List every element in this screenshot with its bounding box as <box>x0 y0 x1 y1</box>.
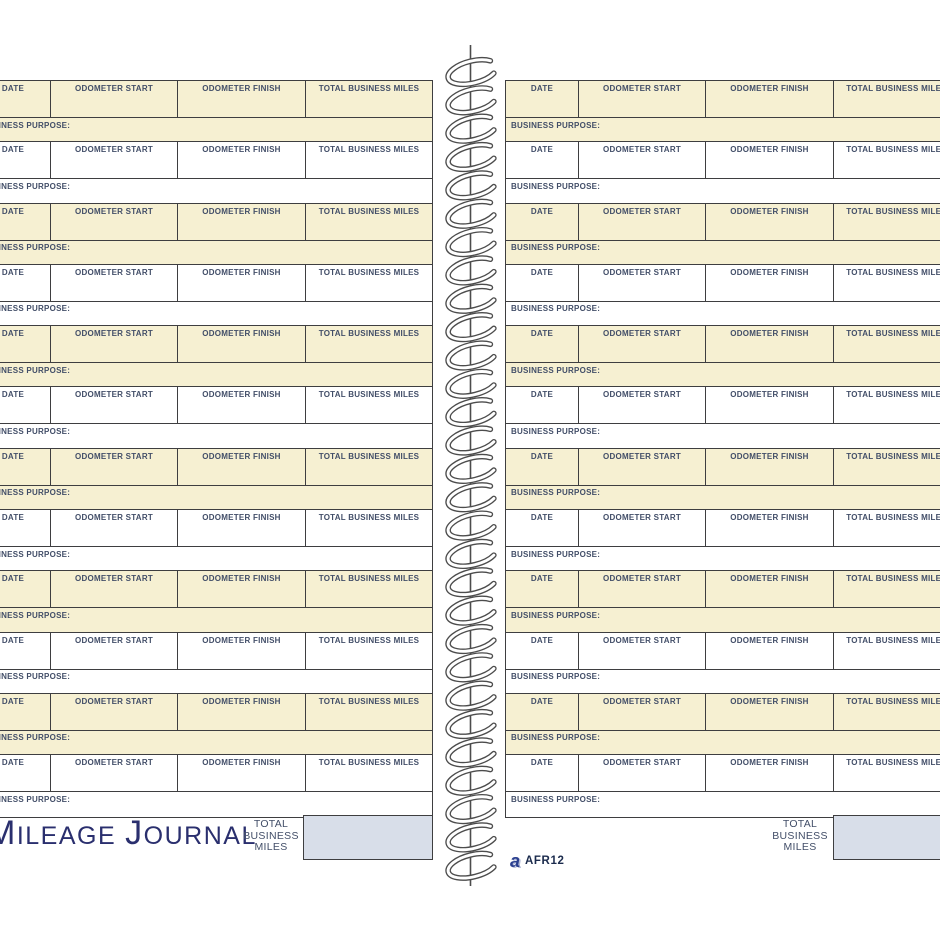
column-header-label: ODOMETER FINISH <box>730 145 808 154</box>
log-entry: DATEODOMETER STARTODOMETER FINISHTOTAL B… <box>0 326 432 387</box>
column-header-label: TOTAL BUSINESS MILES <box>319 513 420 522</box>
business-purpose-label: BUSINESS PURPOSE: <box>511 611 600 620</box>
column-header-label: ODOMETER START <box>75 390 153 399</box>
column-cell-total-business-miles: TOTAL BUSINESS MILES <box>306 571 432 607</box>
column-cell-date: DATE <box>0 387 51 423</box>
business-purpose-row: BUSINESS PURPOSE: <box>506 424 940 448</box>
column-header-label: ODOMETER START <box>75 513 153 522</box>
column-cell-odometer-finish: ODOMETER FINISH <box>178 81 306 117</box>
column-header-label: DATE <box>531 207 553 216</box>
column-cell-total-business-miles: TOTAL BUSINESS MILES <box>834 204 940 240</box>
column-cell-date: DATE <box>0 694 51 730</box>
column-header-label: TOTAL BUSINESS MILES <box>846 145 940 154</box>
column-cell-odometer-start: ODOMETER START <box>579 142 706 178</box>
column-cell-odometer-start: ODOMETER START <box>51 694 178 730</box>
business-purpose-row: BUSINESS PURPOSE: <box>0 792 432 816</box>
column-header-label: ODOMETER FINISH <box>202 268 280 277</box>
business-purpose-label: BUSINESS PURPOSE: <box>511 304 600 313</box>
column-header-label: ODOMETER FINISH <box>730 390 808 399</box>
column-cell-odometer-finish: ODOMETER FINISH <box>178 510 306 546</box>
business-purpose-row: BUSINESS PURPOSE: <box>0 547 432 571</box>
log-entry-header-row: DATEODOMETER STARTODOMETER FINISHTOTAL B… <box>506 633 940 670</box>
column-header-label: ODOMETER START <box>75 574 153 583</box>
column-cell-odometer-start: ODOMETER START <box>51 387 178 423</box>
log-entry: DATEODOMETER STARTODOMETER FINISHTOTAL B… <box>0 204 432 265</box>
column-header-label: ODOMETER FINISH <box>202 329 280 338</box>
business-purpose-row: BUSINESS PURPOSE: <box>0 118 432 142</box>
column-cell-odometer-start: ODOMETER START <box>51 81 178 117</box>
trip-log-table-right: DATEODOMETER STARTODOMETER FINISHTOTAL B… <box>505 80 940 818</box>
column-cell-odometer-start: ODOMETER START <box>51 265 178 301</box>
journal-title: MILEAGEJOURNAL <box>0 816 257 853</box>
column-header-label: DATE <box>2 390 24 399</box>
column-header-label: ODOMETER START <box>603 513 681 522</box>
column-header-label: TOTAL BUSINESS MILES <box>846 207 940 216</box>
column-cell-total-business-miles: TOTAL BUSINESS MILES <box>306 510 432 546</box>
column-cell-date: DATE <box>0 510 51 546</box>
column-header-label: ODOMETER START <box>603 329 681 338</box>
column-cell-odometer-start: ODOMETER START <box>51 449 178 485</box>
column-cell-odometer-finish: ODOMETER FINISH <box>178 571 306 607</box>
column-header-label: DATE <box>2 513 24 522</box>
column-cell-odometer-finish: ODOMETER FINISH <box>706 81 834 117</box>
column-cell-total-business-miles: TOTAL BUSINESS MILES <box>306 265 432 301</box>
column-header-label: ODOMETER FINISH <box>202 207 280 216</box>
column-cell-date: DATE <box>506 265 579 301</box>
business-purpose-row: BUSINESS PURPOSE: <box>506 179 940 203</box>
log-entry-header-row: DATEODOMETER STARTODOMETER FINISHTOTAL B… <box>506 326 940 363</box>
total-miles-box-left <box>303 815 433 860</box>
log-entry-header-row: DATEODOMETER STARTODOMETER FINISHTOTAL B… <box>0 142 432 179</box>
total-business-miles-label-right: TOTAL BUSINESS MILES <box>769 819 831 854</box>
column-cell-date: DATE <box>506 449 579 485</box>
column-header-label: TOTAL BUSINESS MILES <box>846 697 940 706</box>
column-header-label: ODOMETER FINISH <box>730 452 808 461</box>
business-purpose-label: BUSINESS PURPOSE: <box>511 182 600 191</box>
column-header-label: ODOMETER FINISH <box>202 574 280 583</box>
business-purpose-row: BUSINESS PURPOSE: <box>0 241 432 265</box>
log-entry: DATEODOMETER STARTODOMETER FINISHTOTAL B… <box>0 694 432 755</box>
log-entry: DATEODOMETER STARTODOMETER FINISHTOTAL B… <box>506 204 940 265</box>
column-header-label: DATE <box>531 84 553 93</box>
column-cell-date: DATE <box>0 449 51 485</box>
column-header-label: TOTAL BUSINESS MILES <box>846 390 940 399</box>
business-purpose-row: BUSINESS PURPOSE: <box>0 363 432 387</box>
column-header-label: DATE <box>531 268 553 277</box>
title-initial: J <box>125 814 144 852</box>
column-header-label: DATE <box>531 636 553 645</box>
column-header-label: ODOMETER FINISH <box>730 268 808 277</box>
column-cell-odometer-finish: ODOMETER FINISH <box>706 142 834 178</box>
total-label-line: MILES <box>240 842 302 854</box>
column-cell-odometer-finish: ODOMETER FINISH <box>706 755 834 791</box>
business-purpose-label: BUSINESS PURPOSE: <box>0 121 70 130</box>
log-entry-header-row: DATEODOMETER STARTODOMETER FINISHTOTAL B… <box>0 204 432 241</box>
brand-mark: a AFR12 <box>510 852 564 870</box>
column-header-label: TOTAL BUSINESS MILES <box>319 145 420 154</box>
column-header-label: ODOMETER START <box>603 268 681 277</box>
column-header-label: TOTAL BUSINESS MILES <box>846 758 940 767</box>
column-header-label: TOTAL BUSINESS MILES <box>846 268 940 277</box>
column-header-label: ODOMETER START <box>603 145 681 154</box>
column-header-label: DATE <box>2 84 24 93</box>
log-entry-header-row: DATEODOMETER STARTODOMETER FINISHTOTAL B… <box>506 387 940 424</box>
column-cell-odometer-start: ODOMETER START <box>579 81 706 117</box>
column-header-label: ODOMETER FINISH <box>202 145 280 154</box>
column-cell-odometer-start: ODOMETER START <box>579 326 706 362</box>
column-cell-date: DATE <box>0 142 51 178</box>
business-purpose-label: BUSINESS PURPOSE: <box>511 550 600 559</box>
column-cell-odometer-finish: ODOMETER FINISH <box>178 449 306 485</box>
business-purpose-label: BUSINESS PURPOSE: <box>511 488 600 497</box>
column-header-label: ODOMETER FINISH <box>202 758 280 767</box>
log-entry-header-row: DATEODOMETER STARTODOMETER FINISHTOTAL B… <box>506 265 940 302</box>
column-cell-odometer-start: ODOMETER START <box>51 571 178 607</box>
column-header-label: ODOMETER FINISH <box>202 513 280 522</box>
log-entry: DATEODOMETER STARTODOMETER FINISHTOTAL B… <box>506 633 940 694</box>
column-header-label: DATE <box>531 452 553 461</box>
column-header-label: TOTAL BUSINESS MILES <box>319 390 420 399</box>
business-purpose-row: BUSINESS PURPOSE: <box>506 608 940 632</box>
column-cell-total-business-miles: TOTAL BUSINESS MILES <box>306 633 432 669</box>
column-header-label: ODOMETER START <box>603 452 681 461</box>
log-entry: DATEODOMETER STARTODOMETER FINISHTOTAL B… <box>506 265 940 326</box>
column-header-label: DATE <box>2 145 24 154</box>
column-cell-odometer-start: ODOMETER START <box>579 387 706 423</box>
business-purpose-row: BUSINESS PURPOSE: <box>506 547 940 571</box>
column-header-label: DATE <box>2 758 24 767</box>
log-entry: DATEODOMETER STARTODOMETER FINISHTOTAL B… <box>0 571 432 632</box>
trip-log-table-left: DATEODOMETER STARTODOMETER FINISHTOTAL B… <box>0 80 433 818</box>
column-cell-odometer-finish: ODOMETER FINISH <box>706 571 834 607</box>
business-purpose-row: BUSINESS PURPOSE: <box>0 486 432 510</box>
column-cell-total-business-miles: TOTAL BUSINESS MILES <box>834 387 940 423</box>
column-cell-odometer-start: ODOMETER START <box>51 755 178 791</box>
column-cell-date: DATE <box>506 326 579 362</box>
mileage-journal-spread: DATEODOMETER STARTODOMETER FINISHTOTAL B… <box>0 0 940 940</box>
business-purpose-label: BUSINESS PURPOSE: <box>511 795 600 804</box>
business-purpose-label: BUSINESS PURPOSE: <box>0 733 70 742</box>
column-header-label: TOTAL BUSINESS MILES <box>846 574 940 583</box>
business-purpose-label: BUSINESS PURPOSE: <box>511 427 600 436</box>
business-purpose-label: BUSINESS PURPOSE: <box>0 672 70 681</box>
column-cell-total-business-miles: TOTAL BUSINESS MILES <box>834 571 940 607</box>
total-miles-box-right <box>833 815 940 860</box>
column-header-label: DATE <box>531 390 553 399</box>
column-header-label: ODOMETER START <box>75 268 153 277</box>
column-cell-odometer-start: ODOMETER START <box>579 204 706 240</box>
column-cell-total-business-miles: TOTAL BUSINESS MILES <box>306 326 432 362</box>
log-entry-header-row: DATEODOMETER STARTODOMETER FINISHTOTAL B… <box>0 326 432 363</box>
column-header-label: DATE <box>2 636 24 645</box>
log-entry: DATEODOMETER STARTODOMETER FINISHTOTAL B… <box>0 510 432 571</box>
log-entry: DATEODOMETER STARTODOMETER FINISHTOTAL B… <box>0 633 432 694</box>
business-purpose-row: BUSINESS PURPOSE: <box>506 486 940 510</box>
column-cell-date: DATE <box>0 81 51 117</box>
business-purpose-label: BUSINESS PURPOSE: <box>0 488 70 497</box>
log-entry: DATEODOMETER STARTODOMETER FINISHTOTAL B… <box>506 694 940 755</box>
column-cell-odometer-finish: ODOMETER FINISH <box>706 387 834 423</box>
column-cell-odometer-start: ODOMETER START <box>579 755 706 791</box>
column-cell-date: DATE <box>506 694 579 730</box>
column-header-label: DATE <box>2 697 24 706</box>
title-initial: M <box>0 814 17 852</box>
column-cell-date: DATE <box>506 204 579 240</box>
column-header-label: TOTAL BUSINESS MILES <box>846 329 940 338</box>
column-cell-odometer-finish: ODOMETER FINISH <box>706 694 834 730</box>
column-cell-odometer-finish: ODOMETER FINISH <box>706 510 834 546</box>
column-cell-total-business-miles: TOTAL BUSINESS MILES <box>306 204 432 240</box>
column-cell-date: DATE <box>0 755 51 791</box>
column-header-label: ODOMETER START <box>75 697 153 706</box>
column-cell-date: DATE <box>0 204 51 240</box>
column-header-label: TOTAL BUSINESS MILES <box>319 574 420 583</box>
log-entry: DATEODOMETER STARTODOMETER FINISHTOTAL B… <box>506 571 940 632</box>
business-purpose-row: BUSINESS PURPOSE: <box>0 670 432 694</box>
column-cell-total-business-miles: TOTAL BUSINESS MILES <box>834 510 940 546</box>
column-cell-odometer-finish: ODOMETER FINISH <box>706 265 834 301</box>
log-entry-header-row: DATEODOMETER STARTODOMETER FINISHTOTAL B… <box>506 694 940 731</box>
column-header-label: ODOMETER FINISH <box>730 636 808 645</box>
column-header-label: ODOMETER FINISH <box>202 452 280 461</box>
column-cell-total-business-miles: TOTAL BUSINESS MILES <box>306 449 432 485</box>
log-entry-header-row: DATEODOMETER STARTODOMETER FINISHTOTAL B… <box>506 81 940 118</box>
log-entry: DATEODOMETER STARTODOMETER FINISHTOTAL B… <box>0 755 432 816</box>
column-cell-odometer-finish: ODOMETER FINISH <box>178 204 306 240</box>
column-header-label: ODOMETER FINISH <box>202 84 280 93</box>
column-header-label: ODOMETER START <box>75 636 153 645</box>
total-business-miles-label-left: TOTAL BUSINESS MILES <box>240 819 302 854</box>
column-header-label: ODOMETER START <box>75 145 153 154</box>
column-cell-odometer-finish: ODOMETER FINISH <box>706 449 834 485</box>
column-header-label: ODOMETER START <box>75 452 153 461</box>
column-header-label: ODOMETER START <box>75 84 153 93</box>
business-purpose-row: BUSINESS PURPOSE: <box>0 424 432 448</box>
column-header-label: DATE <box>531 513 553 522</box>
column-header-label: ODOMETER START <box>603 390 681 399</box>
total-label-line: MILES <box>769 842 831 854</box>
column-cell-odometer-finish: ODOMETER FINISH <box>178 755 306 791</box>
column-cell-total-business-miles: TOTAL BUSINESS MILES <box>834 449 940 485</box>
business-purpose-label: BUSINESS PURPOSE: <box>0 427 70 436</box>
business-purpose-label: BUSINESS PURPOSE: <box>0 243 70 252</box>
column-header-label: ODOMETER FINISH <box>730 513 808 522</box>
column-cell-date: DATE <box>506 571 579 607</box>
column-header-label: ODOMETER FINISH <box>730 84 808 93</box>
column-cell-date: DATE <box>506 633 579 669</box>
column-cell-total-business-miles: TOTAL BUSINESS MILES <box>306 387 432 423</box>
log-entry-header-row: DATEODOMETER STARTODOMETER FINISHTOTAL B… <box>506 449 940 486</box>
business-purpose-row: BUSINESS PURPOSE: <box>506 363 940 387</box>
column-cell-odometer-finish: ODOMETER FINISH <box>706 204 834 240</box>
column-header-label: ODOMETER FINISH <box>730 758 808 767</box>
log-entry: DATEODOMETER STARTODOMETER FINISHTOTAL B… <box>506 326 940 387</box>
log-entry-header-row: DATEODOMETER STARTODOMETER FINISHTOTAL B… <box>0 571 432 608</box>
column-cell-odometer-finish: ODOMETER FINISH <box>706 633 834 669</box>
column-header-label: ODOMETER FINISH <box>730 697 808 706</box>
log-entry: DATEODOMETER STARTODOMETER FINISHTOTAL B… <box>506 387 940 448</box>
column-header-label: ODOMETER START <box>603 84 681 93</box>
business-purpose-label: BUSINESS PURPOSE: <box>0 611 70 620</box>
column-header-label: DATE <box>2 268 24 277</box>
column-cell-odometer-finish: ODOMETER FINISH <box>178 326 306 362</box>
column-cell-odometer-start: ODOMETER START <box>51 142 178 178</box>
column-cell-total-business-miles: TOTAL BUSINESS MILES <box>834 81 940 117</box>
column-header-label: TOTAL BUSINESS MILES <box>319 329 420 338</box>
log-entry: DATEODOMETER STARTODOMETER FINISHTOTAL B… <box>0 142 432 203</box>
column-header-label: DATE <box>531 697 553 706</box>
column-header-label: ODOMETER START <box>75 207 153 216</box>
column-header-label: ODOMETER START <box>603 574 681 583</box>
column-header-label: ODOMETER START <box>75 758 153 767</box>
column-cell-total-business-miles: TOTAL BUSINESS MILES <box>834 142 940 178</box>
column-header-label: TOTAL BUSINESS MILES <box>846 84 940 93</box>
title-text: ILEAGE <box>17 822 116 850</box>
column-header-label: ODOMETER START <box>75 329 153 338</box>
column-cell-odometer-finish: ODOMETER FINISH <box>178 633 306 669</box>
business-purpose-row: BUSINESS PURPOSE: <box>0 179 432 203</box>
column-header-label: DATE <box>531 574 553 583</box>
log-entry-header-row: DATEODOMETER STARTODOMETER FINISHTOTAL B… <box>506 510 940 547</box>
column-header-label: TOTAL BUSINESS MILES <box>319 268 420 277</box>
column-cell-total-business-miles: TOTAL BUSINESS MILES <box>834 265 940 301</box>
column-header-label: TOTAL BUSINESS MILES <box>846 636 940 645</box>
business-purpose-row: BUSINESS PURPOSE: <box>506 241 940 265</box>
column-header-label: DATE <box>2 452 24 461</box>
total-label-line: TOTAL <box>769 819 831 831</box>
column-header-label: TOTAL BUSINESS MILES <box>319 207 420 216</box>
log-entry-header-row: DATEODOMETER STARTODOMETER FINISHTOTAL B… <box>0 510 432 547</box>
total-label-line: TOTAL <box>240 819 302 831</box>
column-header-label: ODOMETER FINISH <box>730 574 808 583</box>
column-cell-total-business-miles: TOTAL BUSINESS MILES <box>834 326 940 362</box>
column-header-label: DATE <box>2 207 24 216</box>
log-entry-header-row: DATEODOMETER STARTODOMETER FINISHTOTAL B… <box>0 694 432 731</box>
column-cell-date: DATE <box>0 571 51 607</box>
business-purpose-label: BUSINESS PURPOSE: <box>0 795 70 804</box>
column-cell-date: DATE <box>506 81 579 117</box>
column-cell-odometer-start: ODOMETER START <box>51 204 178 240</box>
column-header-label: DATE <box>531 145 553 154</box>
column-header-label: ODOMETER FINISH <box>202 636 280 645</box>
column-cell-odometer-start: ODOMETER START <box>579 510 706 546</box>
column-header-label: ODOMETER START <box>603 758 681 767</box>
business-purpose-label: BUSINESS PURPOSE: <box>511 733 600 742</box>
column-cell-odometer-start: ODOMETER START <box>51 510 178 546</box>
column-cell-odometer-start: ODOMETER START <box>579 449 706 485</box>
spiral-binding <box>436 0 508 940</box>
column-cell-date: DATE <box>506 387 579 423</box>
column-header-label: DATE <box>2 574 24 583</box>
column-cell-odometer-start: ODOMETER START <box>579 694 706 730</box>
column-header-label: ODOMETER FINISH <box>202 697 280 706</box>
column-cell-total-business-miles: TOTAL BUSINESS MILES <box>306 142 432 178</box>
business-purpose-row: BUSINESS PURPOSE: <box>506 731 940 755</box>
log-entry: DATEODOMETER STARTODOMETER FINISHTOTAL B… <box>0 81 432 142</box>
column-cell-date: DATE <box>0 633 51 669</box>
column-header-label: TOTAL BUSINESS MILES <box>319 758 420 767</box>
column-cell-date: DATE <box>0 326 51 362</box>
column-cell-odometer-start: ODOMETER START <box>579 633 706 669</box>
column-cell-odometer-start: ODOMETER START <box>579 571 706 607</box>
column-cell-total-business-miles: TOTAL BUSINESS MILES <box>306 81 432 117</box>
column-header-label: ODOMETER FINISH <box>202 390 280 399</box>
log-entry: DATEODOMETER STARTODOMETER FINISHTOTAL B… <box>0 265 432 326</box>
column-header-label: ODOMETER START <box>603 697 681 706</box>
column-header-label: ODOMETER START <box>603 636 681 645</box>
business-purpose-row: BUSINESS PURPOSE: <box>506 792 940 816</box>
log-entry-header-row: DATEODOMETER STARTODOMETER FINISHTOTAL B… <box>0 449 432 486</box>
adams-logo-icon: a <box>510 852 520 870</box>
column-cell-odometer-finish: ODOMETER FINISH <box>706 326 834 362</box>
log-entry: DATEODOMETER STARTODOMETER FINISHTOTAL B… <box>0 387 432 448</box>
column-cell-odometer-start: ODOMETER START <box>51 633 178 669</box>
log-entry: DATEODOMETER STARTODOMETER FINISHTOTAL B… <box>506 81 940 142</box>
column-cell-odometer-finish: ODOMETER FINISH <box>178 265 306 301</box>
business-purpose-label: BUSINESS PURPOSE: <box>511 366 600 375</box>
column-cell-total-business-miles: TOTAL BUSINESS MILES <box>306 694 432 730</box>
column-cell-date: DATE <box>506 142 579 178</box>
column-header-label: TOTAL BUSINESS MILES <box>319 636 420 645</box>
log-entry: DATEODOMETER STARTODOMETER FINISHTOTAL B… <box>506 449 940 510</box>
column-header-label: DATE <box>531 758 553 767</box>
log-entry: DATEODOMETER STARTODOMETER FINISHTOTAL B… <box>0 449 432 510</box>
column-header-label: TOTAL BUSINESS MILES <box>319 697 420 706</box>
business-purpose-label: BUSINESS PURPOSE: <box>511 672 600 681</box>
log-entry-header-row: DATEODOMETER STARTODOMETER FINISHTOTAL B… <box>0 265 432 302</box>
log-entry-header-row: DATEODOMETER STARTODOMETER FINISHTOTAL B… <box>0 387 432 424</box>
column-header-label: DATE <box>531 329 553 338</box>
column-header-label: ODOMETER FINISH <box>730 329 808 338</box>
column-header-label: TOTAL BUSINESS MILES <box>319 452 420 461</box>
business-purpose-row: BUSINESS PURPOSE: <box>506 302 940 326</box>
log-entry-header-row: DATEODOMETER STARTODOMETER FINISHTOTAL B… <box>506 571 940 608</box>
business-purpose-label: BUSINESS PURPOSE: <box>0 304 70 313</box>
log-entry-header-row: DATEODOMETER STARTODOMETER FINISHTOTAL B… <box>506 755 940 792</box>
column-cell-odometer-finish: ODOMETER FINISH <box>178 142 306 178</box>
business-purpose-label: BUSINESS PURPOSE: <box>511 243 600 252</box>
log-entry-header-row: DATEODOMETER STARTODOMETER FINISHTOTAL B… <box>0 633 432 670</box>
column-header-label: TOTAL BUSINESS MILES <box>846 513 940 522</box>
column-cell-date: DATE <box>506 510 579 546</box>
business-purpose-row: BUSINESS PURPOSE: <box>506 670 940 694</box>
column-cell-odometer-start: ODOMETER START <box>579 265 706 301</box>
column-cell-odometer-start: ODOMETER START <box>51 326 178 362</box>
column-cell-odometer-finish: ODOMETER FINISH <box>178 694 306 730</box>
business-purpose-label: BUSINESS PURPOSE: <box>0 550 70 559</box>
column-cell-odometer-finish: ODOMETER FINISH <box>178 387 306 423</box>
log-entry-header-row: DATEODOMETER STARTODOMETER FINISHTOTAL B… <box>506 204 940 241</box>
column-header-label: DATE <box>2 329 24 338</box>
column-header-label: TOTAL BUSINESS MILES <box>319 84 420 93</box>
product-code: AFR12 <box>525 855 564 867</box>
business-purpose-label: BUSINESS PURPOSE: <box>511 121 600 130</box>
column-header-label: ODOMETER FINISH <box>730 207 808 216</box>
business-purpose-row: BUSINESS PURPOSE: <box>0 731 432 755</box>
log-entry: DATEODOMETER STARTODOMETER FINISHTOTAL B… <box>506 510 940 571</box>
column-cell-date: DATE <box>0 265 51 301</box>
column-header-label: ODOMETER START <box>603 207 681 216</box>
business-purpose-row: BUSINESS PURPOSE: <box>506 118 940 142</box>
column-cell-total-business-miles: TOTAL BUSINESS MILES <box>834 633 940 669</box>
column-cell-date: DATE <box>506 755 579 791</box>
column-cell-total-business-miles: TOTAL BUSINESS MILES <box>834 755 940 791</box>
business-purpose-label: BUSINESS PURPOSE: <box>0 182 70 191</box>
log-entry-header-row: DATEODOMETER STARTODOMETER FINISHTOTAL B… <box>0 755 432 792</box>
column-header-label: TOTAL BUSINESS MILES <box>846 452 940 461</box>
column-cell-total-business-miles: TOTAL BUSINESS MILES <box>834 694 940 730</box>
business-purpose-label: BUSINESS PURPOSE: <box>0 366 70 375</box>
